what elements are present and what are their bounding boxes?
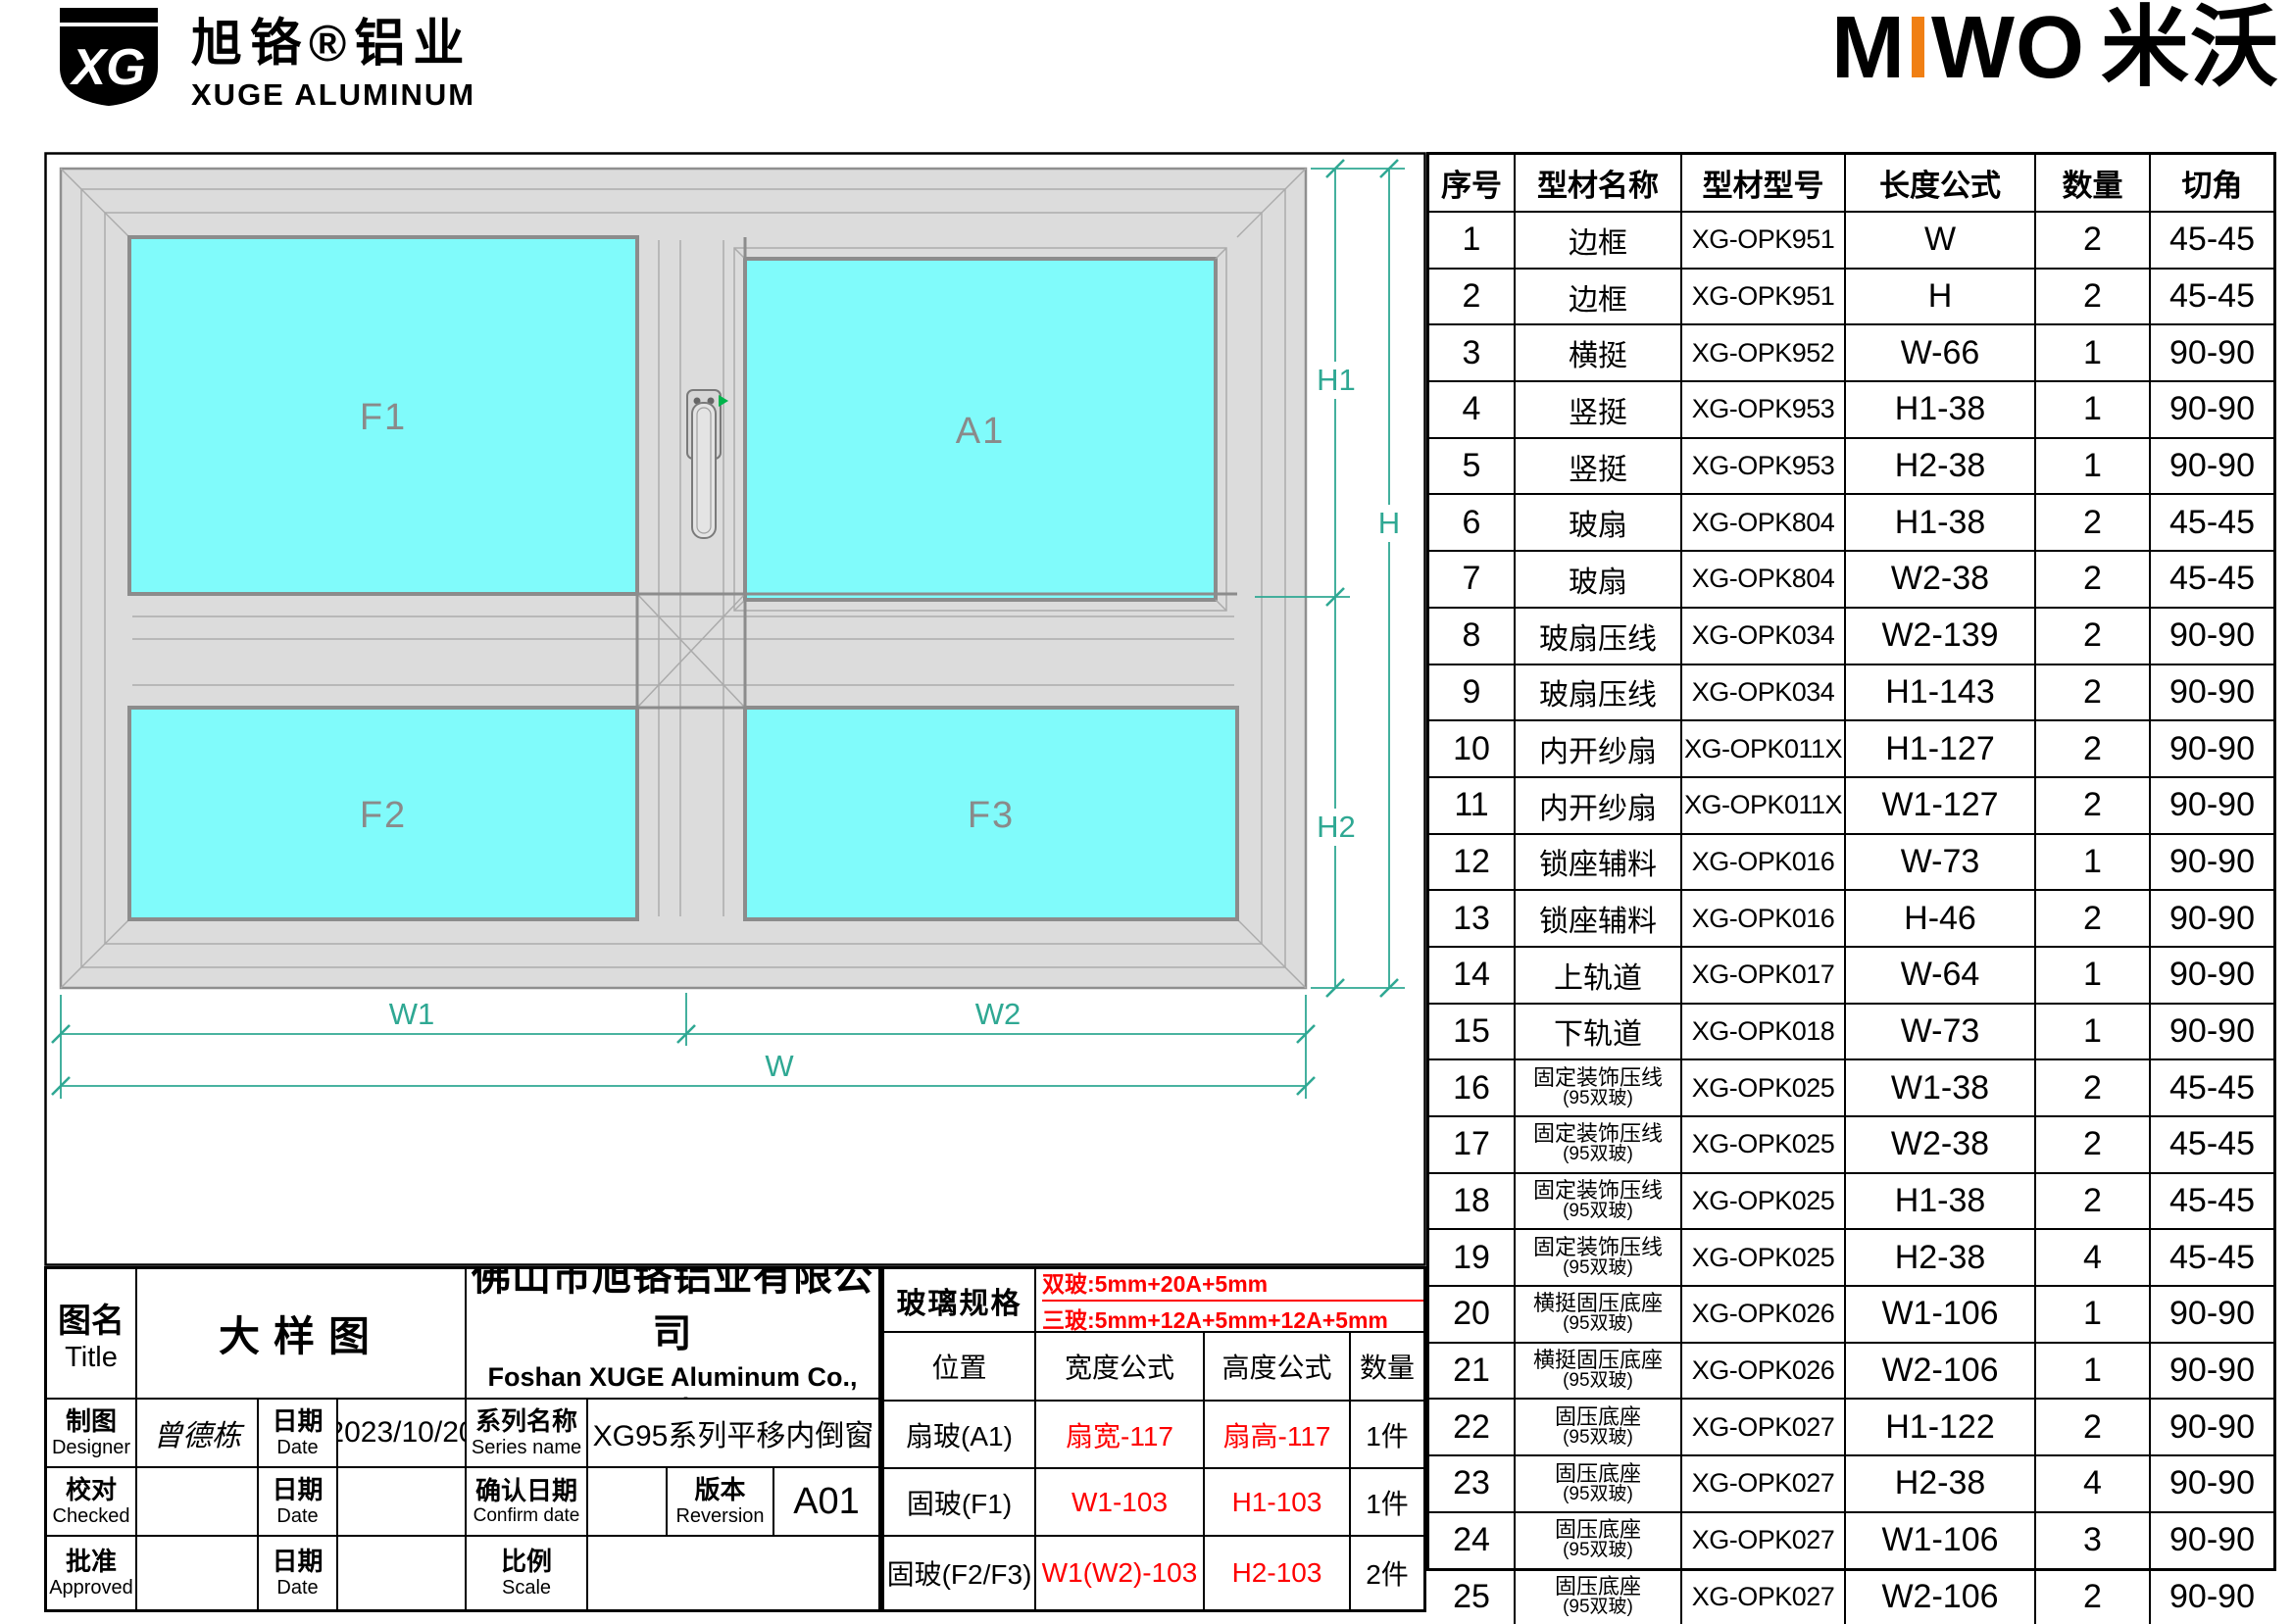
pane-label-a1: A1 <box>956 411 1005 452</box>
cell-name: 固压底座(95双玻) <box>1516 1400 1682 1454</box>
cell-no: 16 <box>1429 1060 1516 1115</box>
cell-name: 内开纱扇 <box>1516 778 1682 833</box>
cell-formula: W2-106 <box>1846 1344 2036 1399</box>
table-row: 23固压底座(95双玻)XG-OPK027H2-38490-90 <box>1429 1456 2273 1513</box>
date-label-cn: 日期 <box>272 1476 323 1505</box>
series-value-cell: XG95系列平移内倒窗 <box>588 1400 878 1468</box>
cell-qty: 2 <box>2036 721 2151 776</box>
profile-name: 横挺固压底座 <box>1533 1350 1663 1371</box>
profile-name-sub: (95双玻) <box>1563 1089 1633 1109</box>
cell-name: 固压底座(95双玻) <box>1516 1456 1682 1511</box>
cell-model: XG-OPK017 <box>1682 948 1846 1003</box>
checked-label-en: Checked <box>53 1505 130 1527</box>
glass-row-h: H1-103 <box>1205 1469 1351 1537</box>
col-header-model: 型材型号 <box>1682 155 1846 211</box>
cell-no: 18 <box>1429 1174 1516 1229</box>
xg-shield-logo-icon: XG <box>54 6 164 108</box>
table-row: 16固定装饰压线(95双玻)XG-OPK025W1-38245-45 <box>1429 1060 2273 1117</box>
profile-name: 上轨道 <box>1554 954 1642 997</box>
profile-name: 锁座辅料 <box>1539 897 1657 940</box>
miwo-letter-i: I <box>1906 0 1931 97</box>
table-row: 25固压底座(95双玻)XG-OPK027W2-106290-90 <box>1429 1570 2273 1624</box>
designer-label-cn: 制图 <box>66 1407 117 1437</box>
profile-name-sub: (95双玻) <box>1563 1371 1633 1392</box>
cell-name: 玻扇 <box>1516 552 1682 607</box>
cell-qty: 2 <box>2036 1060 2151 1115</box>
table-row: 19固定装饰压线(95双玻)XG-OPK025H2-38445-45 <box>1429 1230 2273 1287</box>
cell-angle: 90-90 <box>2151 1400 2273 1454</box>
cell-no: 8 <box>1429 609 1516 664</box>
xg-brand-en: XUGE ALUMINUM <box>191 77 475 113</box>
cell-model: XG-OPK034 <box>1682 609 1846 664</box>
cell-angle: 90-90 <box>2151 382 2273 437</box>
cell-name: 竖挺 <box>1516 439 1682 494</box>
cell-angle: 90-90 <box>2151 609 2273 664</box>
col-header-name: 型材名称 <box>1516 155 1682 211</box>
cell-qty: 1 <box>2036 948 2151 1003</box>
profile-name: 横挺固压底座 <box>1533 1293 1663 1314</box>
confirm-date-value-cell <box>588 1468 668 1537</box>
title-label-en: Title <box>65 1342 118 1374</box>
profile-name: 固压底座 <box>1555 1406 1641 1428</box>
profile-name-sub: (95双玻) <box>1563 1485 1633 1505</box>
cell-formula: H1-127 <box>1846 721 2036 776</box>
cell-formula: H2-38 <box>1846 439 2036 494</box>
cell-formula: W2-139 <box>1846 609 2036 664</box>
cell-name: 固定装饰压线(95双玻) <box>1516 1174 1682 1229</box>
cell-angle: 90-90 <box>2151 721 2273 776</box>
cell-formula: H2-38 <box>1846 1230 2036 1285</box>
cell-angle: 90-90 <box>2151 1456 2273 1511</box>
cell-formula: W <box>1846 213 2036 268</box>
profile-name: 固压底座 <box>1555 1463 1641 1485</box>
cell-angle: 90-90 <box>2151 665 2273 720</box>
cell-name: 内开纱扇 <box>1516 721 1682 776</box>
profile-name: 固压底座 <box>1555 1519 1641 1541</box>
cell-formula: W1-106 <box>1846 1513 2036 1568</box>
cell-name: 横挺固压底座(95双玻) <box>1516 1287 1682 1342</box>
col-header-qty: 数量 <box>2036 155 2151 211</box>
cell-angle: 45-45 <box>2151 1230 2273 1285</box>
glass-col-width: 宽度公式 <box>1036 1333 1205 1402</box>
cell-name: 边框 <box>1516 270 1682 324</box>
table-row: 5竖挺XG-OPK953H2-38190-90 <box>1429 439 2273 496</box>
profile-name: 玻扇压线 <box>1539 615 1657 658</box>
cell-no: 2 <box>1429 270 1516 324</box>
dim-label-w2: W2 <box>975 997 1022 1031</box>
cell-model: XG-OPK025 <box>1682 1117 1846 1172</box>
glass-row-qty: 1件 <box>1351 1469 1423 1537</box>
cell-name: 玻扇压线 <box>1516 665 1682 720</box>
table-row: 3横挺XG-OPK952W-66190-90 <box>1429 325 2273 382</box>
designer-label-cell: 制图 Designer <box>47 1400 137 1468</box>
window-elevation-drawing: F1 A1 F2 F3 W1 W2 W <box>44 152 1426 1266</box>
profile-name: 固压底座 <box>1555 1576 1641 1598</box>
cell-formula: H1-38 <box>1846 382 2036 437</box>
cell-qty: 1 <box>2036 1287 2151 1342</box>
table-row: 18固定装饰压线(95双玻)XG-OPK025H1-38245-45 <box>1429 1174 2273 1231</box>
table-row: 4竖挺XG-OPK953H1-38190-90 <box>1429 382 2273 439</box>
cell-name: 横挺 <box>1516 325 1682 380</box>
parts-table-header: 序号 型材名称 型材型号 长度公式 数量 切角 <box>1429 155 2273 213</box>
profile-name: 边框 <box>1569 219 1627 262</box>
cell-angle: 90-90 <box>2151 1287 2273 1342</box>
xg-brand-cn: 旭铬®铝业 <box>191 18 475 72</box>
table-row: 22固压底座(95双玻)XG-OPK027H1-122290-90 <box>1429 1400 2273 1456</box>
series-label-cell: 系列名称 Series name <box>467 1400 588 1468</box>
col-header-angle: 切角 <box>2151 155 2273 211</box>
xg-brand-text: 旭铬®铝业 XUGE ALUMINUM <box>191 6 475 113</box>
pane-label-f2: F2 <box>360 795 407 836</box>
date-value-cell: 2023/10/20 <box>338 1400 467 1468</box>
checked-label-cell: 校对 Checked <box>47 1468 137 1537</box>
cell-angle: 90-90 <box>2151 325 2273 380</box>
miwo-letter-m: M <box>1831 0 1906 97</box>
cell-qty: 1 <box>2036 1005 2151 1059</box>
glass-row-pos: 扇玻(A1) <box>884 1402 1036 1469</box>
cell-model: XG-OPK027 <box>1682 1513 1846 1568</box>
date-label-en: Date <box>276 1577 318 1599</box>
cell-qty: 2 <box>2036 1117 2151 1172</box>
cell-angle: 45-45 <box>2151 552 2273 607</box>
title-label-cn: 图名 <box>58 1294 125 1342</box>
cell-model: XG-OPK026 <box>1682 1287 1846 1342</box>
cell-formula: H2-38 <box>1846 1456 2036 1511</box>
cell-no: 20 <box>1429 1287 1516 1342</box>
glass-row-qty: 2件 <box>1351 1537 1423 1609</box>
cell-qty: 1 <box>2036 1344 2151 1399</box>
cell-formula: W-66 <box>1846 325 2036 380</box>
cell-name: 锁座辅料 <box>1516 891 1682 946</box>
miwo-letters-wo: WO <box>1931 0 2085 97</box>
confirm-date-label-cell: 确认日期 Confirm date <box>467 1468 588 1537</box>
cell-qty: 4 <box>2036 1230 2151 1285</box>
cell-qty: 2 <box>2036 1174 2151 1229</box>
version-label-cn: 版本 <box>694 1476 745 1505</box>
profile-name-sub: (95双玻) <box>1563 1258 1633 1279</box>
company-name-en: Foshan XUGE Aluminum Co., Ltd. <box>467 1362 878 1401</box>
approved-label-en: Approved <box>49 1577 133 1599</box>
table-row: 10内开纱扇XG-OPK011XH1-127290-90 <box>1429 721 2273 778</box>
table-row: 12锁座辅料XG-OPK016W-73190-90 <box>1429 835 2273 892</box>
cell-qty: 1 <box>2036 325 2151 380</box>
series-label-cn: 系列名称 <box>475 1407 577 1437</box>
header-left: XG 旭铬®铝业 XUGE ALUMINUM <box>54 6 475 113</box>
cell-name: 固压底座(95双玻) <box>1516 1513 1682 1568</box>
cell-formula: W1-127 <box>1846 778 2036 833</box>
date-label-cn: 日期 <box>272 1407 323 1437</box>
profile-name-sub: (95双玻) <box>1563 1314 1633 1335</box>
dim-label-h2: H2 <box>1317 810 1356 844</box>
profile-name: 玻扇 <box>1569 558 1627 601</box>
cell-angle: 90-90 <box>2151 835 2273 890</box>
cell-angle: 90-90 <box>2151 1570 2273 1624</box>
glass-spec-double: 双玻:5mm+20A+5mm <box>1042 1269 1423 1302</box>
table-row: 20横挺固压底座(95双玻)XG-OPK026W1-106190-90 <box>1429 1287 2273 1344</box>
designer-label-en: Designer <box>52 1437 130 1458</box>
cell-no: 6 <box>1429 495 1516 550</box>
cell-angle: 45-45 <box>2151 213 2273 268</box>
cell-name: 固定装饰压线(95双玻) <box>1516 1230 1682 1285</box>
parts-table-body: 1边框XG-OPK951W245-452边框XG-OPK951H245-453横… <box>1429 213 2273 1624</box>
glass-row-h: 扇高-117 <box>1205 1402 1351 1469</box>
cell-no: 17 <box>1429 1117 1516 1172</box>
cell-angle: 45-45 <box>2151 270 2273 324</box>
glass-col-qty: 数量 <box>1351 1333 1423 1402</box>
glass-col-height: 高度公式 <box>1205 1333 1351 1402</box>
glass-row-pos: 固玻(F1) <box>884 1469 1036 1537</box>
table-row: 11内开纱扇XG-OPK011XW1-127290-90 <box>1429 778 2273 835</box>
cell-no: 9 <box>1429 665 1516 720</box>
profile-name: 竖挺 <box>1569 445 1627 488</box>
cell-qty: 1 <box>2036 835 2151 890</box>
cell-no: 4 <box>1429 382 1516 437</box>
table-row: 2边框XG-OPK951H245-45 <box>1429 270 2273 326</box>
version-value-cell: A01 <box>774 1468 878 1537</box>
glass-spec-triple: 三玻:5mm+12A+5mm+12A+5mm <box>1042 1302 1388 1333</box>
title-label-cell: 图名 Title <box>47 1269 137 1400</box>
miwo-logo: MIWO米沃 <box>1831 2 2279 95</box>
series-name-value: XG95系列平移内倒窗 <box>593 1411 874 1454</box>
profile-name: 内开纱扇 <box>1539 727 1657 770</box>
table-row: 13锁座辅料XG-OPK016H-46290-90 <box>1429 891 2273 948</box>
cell-model: XG-OPK027 <box>1682 1400 1846 1454</box>
cell-qty: 2 <box>2036 552 2151 607</box>
cell-no: 7 <box>1429 552 1516 607</box>
cell-qty: 2 <box>2036 778 2151 833</box>
cell-formula: H1-38 <box>1846 495 2036 550</box>
checked-label-cn: 校对 <box>66 1476 117 1505</box>
cell-no: 22 <box>1429 1400 1516 1454</box>
cell-formula: W1-106 <box>1846 1287 2036 1342</box>
cell-angle: 45-45 <box>2151 495 2273 550</box>
cell-qty: 3 <box>2036 1513 2151 1568</box>
drawing-sheet: { "branding": { "xg_logo_monogram": "XG"… <box>0 0 2293 1620</box>
cell-model: XG-OPK951 <box>1682 270 1846 324</box>
scale-label-cn: 比例 <box>501 1548 552 1577</box>
company-name-cn: 佛山市旭铬铝业有限公司 <box>467 1269 878 1358</box>
cell-formula: H1-143 <box>1846 665 2036 720</box>
dim-label-h1: H1 <box>1317 363 1356 397</box>
cell-model: XG-OPK011X <box>1682 778 1846 833</box>
version-value: A01 <box>793 1481 860 1523</box>
cell-no: 23 <box>1429 1456 1516 1511</box>
drawing-title: 大样图 <box>219 1304 383 1363</box>
table-row: 15下轨道XG-OPK018W-73190-90 <box>1429 1005 2273 1061</box>
profile-name: 竖挺 <box>1569 388 1627 431</box>
confirm-label-en: Confirm date <box>474 1506 580 1527</box>
profile-name: 锁座辅料 <box>1539 840 1657 883</box>
glass-spec-formulas: 双玻:5mm+20A+5mm 三玻:5mm+12A+5mm+12A+5mm <box>1036 1269 1423 1333</box>
glass-spec-table: 玻璃规格 双玻:5mm+20A+5mm 三玻:5mm+12A+5mm+12A+5… <box>881 1266 1426 1612</box>
cell-formula: H <box>1846 270 2036 324</box>
cell-qty: 2 <box>2036 495 2151 550</box>
date-label-cell-3: 日期 Date <box>259 1537 338 1609</box>
date-label-cn: 日期 <box>272 1548 323 1577</box>
col-header-no: 序号 <box>1429 155 1516 211</box>
cell-name: 下轨道 <box>1516 1005 1682 1059</box>
cell-qty: 2 <box>2036 1400 2151 1454</box>
cell-angle: 90-90 <box>2151 1344 2273 1399</box>
checked-date-cell <box>338 1468 467 1537</box>
cell-no: 12 <box>1429 835 1516 890</box>
parts-table: 序号 型材名称 型材型号 长度公式 数量 切角 1边框XG-OPK951W245… <box>1426 152 2276 1571</box>
profile-name: 固定装饰压线 <box>1533 1067 1663 1089</box>
design-date: 2023/10/20 <box>338 1416 467 1450</box>
cell-no: 10 <box>1429 721 1516 776</box>
cell-name: 玻扇压线 <box>1516 609 1682 664</box>
table-row: 21横挺固压底座(95双玻)XG-OPK026W2-106190-90 <box>1429 1344 2273 1401</box>
cell-formula: H1-38 <box>1846 1174 2036 1229</box>
cell-qty: 2 <box>2036 270 2151 324</box>
cell-no: 21 <box>1429 1344 1516 1399</box>
dim-label-w1: W1 <box>389 997 435 1031</box>
dim-label-h: H <box>1378 506 1400 540</box>
cell-model: XG-OPK034 <box>1682 665 1846 720</box>
cell-model: XG-OPK016 <box>1682 835 1846 890</box>
profile-name: 固定装饰压线 <box>1533 1237 1663 1258</box>
cell-no: 13 <box>1429 891 1516 946</box>
cell-qty: 2 <box>2036 1570 2151 1624</box>
cell-model: XG-OPK018 <box>1682 1005 1846 1059</box>
date-label-en: Date <box>276 1437 318 1458</box>
cell-no: 3 <box>1429 325 1516 380</box>
cell-angle: 90-90 <box>2151 1513 2273 1568</box>
cell-model: XG-OPK951 <box>1682 213 1846 268</box>
profile-name-sub: (95双玻) <box>1563 1145 1633 1165</box>
cell-no: 1 <box>1429 213 1516 268</box>
cell-model: XG-OPK027 <box>1682 1456 1846 1511</box>
cell-no: 11 <box>1429 778 1516 833</box>
cell-no: 25 <box>1429 1570 1516 1624</box>
cell-model: XG-OPK952 <box>1682 325 1846 380</box>
profile-name-sub: (95双玻) <box>1563 1428 1633 1449</box>
cell-angle: 90-90 <box>2151 778 2273 833</box>
designer-value-cell: 曾德栋 <box>137 1400 259 1468</box>
table-row: 17固定装饰压线(95双玻)XG-OPK025W2-38245-45 <box>1429 1117 2273 1174</box>
cell-model: XG-OPK016 <box>1682 891 1846 946</box>
profile-name-sub: (95双玻) <box>1563 1541 1633 1561</box>
cell-angle: 90-90 <box>2151 439 2273 494</box>
cell-formula: W2-38 <box>1846 1117 2036 1172</box>
series-label-en: Series name <box>472 1437 581 1458</box>
profile-name-sub: (95双玻) <box>1563 1598 1633 1618</box>
cell-model: XG-OPK804 <box>1682 495 1846 550</box>
glass-row-qty: 1件 <box>1351 1402 1423 1469</box>
cell-no: 19 <box>1429 1230 1516 1285</box>
glass-row-w: 扇宽-117 <box>1036 1402 1205 1469</box>
approved-label-cell: 批准 Approved <box>47 1537 137 1609</box>
profile-name: 内开纱扇 <box>1539 784 1657 827</box>
cell-model: XG-OPK804 <box>1682 552 1846 607</box>
confirm-label-cn: 确认日期 <box>475 1477 577 1506</box>
cell-formula: H1-122 <box>1846 1400 2036 1454</box>
version-label-en: Reversion <box>675 1505 764 1527</box>
cell-name: 锁座辅料 <box>1516 835 1682 890</box>
cell-qty: 2 <box>2036 665 2151 720</box>
cell-model: XG-OPK027 <box>1682 1570 1846 1624</box>
profile-name: 玻扇压线 <box>1539 670 1657 714</box>
approved-date-cell <box>338 1537 467 1609</box>
profile-name: 固定装饰压线 <box>1533 1123 1663 1145</box>
glass-row-w: W1-103 <box>1036 1469 1205 1537</box>
cell-name: 固定装饰压线(95双玻) <box>1516 1060 1682 1115</box>
glass-row-h: H2-103 <box>1205 1537 1351 1609</box>
cell-formula: W-64 <box>1846 948 2036 1003</box>
profile-name: 横挺 <box>1569 331 1627 374</box>
cell-model: XG-OPK025 <box>1682 1060 1846 1115</box>
scale-label-cell: 比例 Scale <box>467 1537 588 1609</box>
glass-row-pos: 固玻(F2/F3) <box>884 1537 1036 1609</box>
cell-angle: 45-45 <box>2151 1060 2273 1115</box>
table-row: 24固压底座(95双玻)XG-OPK027W1-106390-90 <box>1429 1513 2273 1570</box>
cell-qty: 2 <box>2036 609 2151 664</box>
cell-model: XG-OPK953 <box>1682 439 1846 494</box>
cell-qty: 1 <box>2036 439 2151 494</box>
date-label-cell-2: 日期 Date <box>259 1468 338 1537</box>
cell-formula: W1-38 <box>1846 1060 2036 1115</box>
approved-value-cell <box>137 1537 259 1609</box>
cell-qty: 2 <box>2036 891 2151 946</box>
glass-col-position: 位置 <box>884 1333 1036 1402</box>
glass-spec-title: 玻璃规格 <box>884 1269 1036 1333</box>
glass-row-w: W1(W2)-103 <box>1036 1537 1205 1609</box>
cell-name: 横挺固压底座(95双玻) <box>1516 1344 1682 1399</box>
table-row: 9玻扇压线XG-OPK034H1-143290-90 <box>1429 665 2273 722</box>
cell-formula: W2-38 <box>1846 552 2036 607</box>
xg-monogram: XG <box>69 39 145 96</box>
drawing-title-cell: 大样图 <box>137 1269 467 1400</box>
table-row: 1边框XG-OPK951W245-45 <box>1429 213 2273 270</box>
version-label-cell: 版本 Reversion <box>668 1468 774 1537</box>
table-row: 8玻扇压线XG-OPK034W2-139290-90 <box>1429 609 2273 665</box>
scale-value-cell <box>588 1537 878 1609</box>
dim-label-w: W <box>765 1049 794 1083</box>
profile-name: 边框 <box>1569 275 1627 319</box>
table-row: 6玻扇XG-OPK804H1-38245-45 <box>1429 495 2273 552</box>
miwo-cn: 米沃 <box>2101 0 2279 97</box>
profile-name: 固定装饰压线 <box>1533 1180 1663 1202</box>
cell-model: XG-OPK026 <box>1682 1344 1846 1399</box>
profile-name: 玻扇 <box>1569 501 1627 544</box>
cell-qty: 4 <box>2036 1456 2151 1511</box>
profile-name-sub: (95双玻) <box>1563 1202 1633 1222</box>
cell-formula: W2-106 <box>1846 1570 2036 1624</box>
cell-angle: 90-90 <box>2151 891 2273 946</box>
checked-value-cell <box>137 1468 259 1537</box>
cell-angle: 90-90 <box>2151 1005 2273 1059</box>
profile-name: 下轨道 <box>1554 1009 1642 1053</box>
cell-angle: 90-90 <box>2151 948 2273 1003</box>
cell-formula: H-46 <box>1846 891 2036 946</box>
cell-formula: W-73 <box>1846 835 2036 890</box>
table-row: 14上轨道XG-OPK017W-64190-90 <box>1429 948 2273 1005</box>
cell-no: 24 <box>1429 1513 1516 1568</box>
date-label-cell-1: 日期 Date <box>259 1400 338 1468</box>
cell-model: XG-OPK953 <box>1682 382 1846 437</box>
table-row: 7玻扇XG-OPK804W2-38245-45 <box>1429 552 2273 609</box>
approved-label-cn: 批准 <box>66 1548 117 1577</box>
col-header-formula: 长度公式 <box>1846 155 2036 211</box>
cell-name: 竖挺 <box>1516 382 1682 437</box>
cell-name: 固定装饰压线(95双玻) <box>1516 1117 1682 1172</box>
designer-name: 曾德栋 <box>153 1411 241 1454</box>
pane-label-f3: F3 <box>968 795 1015 836</box>
cell-model: XG-OPK025 <box>1682 1174 1846 1229</box>
cell-angle: 45-45 <box>2151 1174 2273 1229</box>
cell-name: 上轨道 <box>1516 948 1682 1003</box>
cell-angle: 45-45 <box>2151 1117 2273 1172</box>
